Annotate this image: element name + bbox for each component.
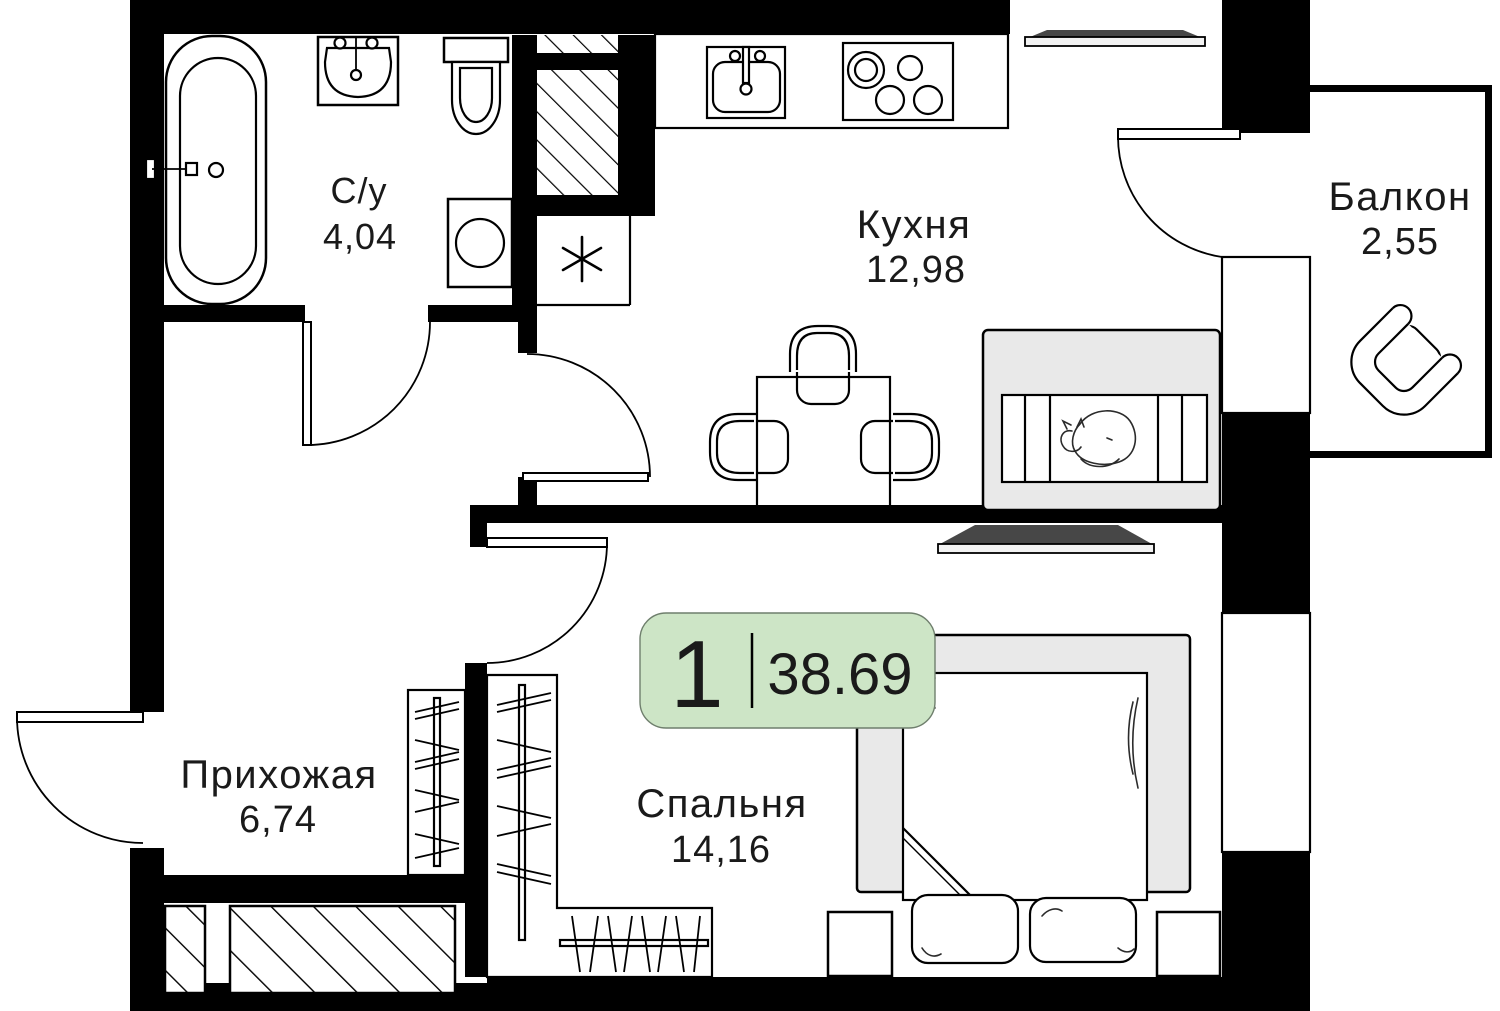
- bathroom-sink-icon: [318, 37, 398, 105]
- room-label-balcony: Балкон: [1328, 175, 1471, 219]
- room-area-bedroom: 14,16: [671, 829, 771, 871]
- pillow: [912, 895, 1018, 963]
- pillow: [1030, 898, 1136, 962]
- floor-plan: С/у 4,04 Кухня 12,98 Балкон 2,55 Прихожа…: [0, 0, 1500, 1011]
- bedroom-window: [1222, 613, 1310, 852]
- badge-total-area: 38.69: [767, 642, 912, 707]
- hallway-wardrobe: [408, 690, 465, 875]
- room-area-balcony: 2,55: [1361, 221, 1439, 263]
- room-area-bathroom: 4,04: [323, 216, 397, 257]
- kitchen-window: [1025, 30, 1205, 46]
- floor-plan-page: С/у 4,04 Кухня 12,98 Балкон 2,55 Прихожа…: [0, 0, 1500, 1011]
- tv-icon: [938, 525, 1154, 553]
- badge-rooms-count: 1: [670, 621, 723, 728]
- chair-icon: [790, 326, 856, 404]
- chair-icon: [861, 414, 939, 480]
- stove-icon: [843, 43, 953, 120]
- nightstand: [1157, 912, 1220, 976]
- nightstand: [828, 912, 892, 976]
- kitchen-sink-icon: [707, 47, 785, 118]
- apartment-badge: 1 38.69: [640, 613, 935, 728]
- room-area-kitchen: 12,98: [866, 249, 966, 291]
- room-label-bathroom: С/у: [331, 170, 388, 211]
- room-label-bedroom: Спальня: [636, 782, 807, 826]
- room-area-hallway: 6,74: [239, 799, 317, 841]
- washing-machine-icon: [448, 199, 512, 287]
- room-label-kitchen: Кухня: [857, 203, 972, 247]
- room-label-hallway: Прихожая: [180, 753, 377, 797]
- sofa-icon: [983, 330, 1220, 510]
- balcony-window: [1222, 257, 1310, 413]
- chair-icon: [710, 414, 788, 480]
